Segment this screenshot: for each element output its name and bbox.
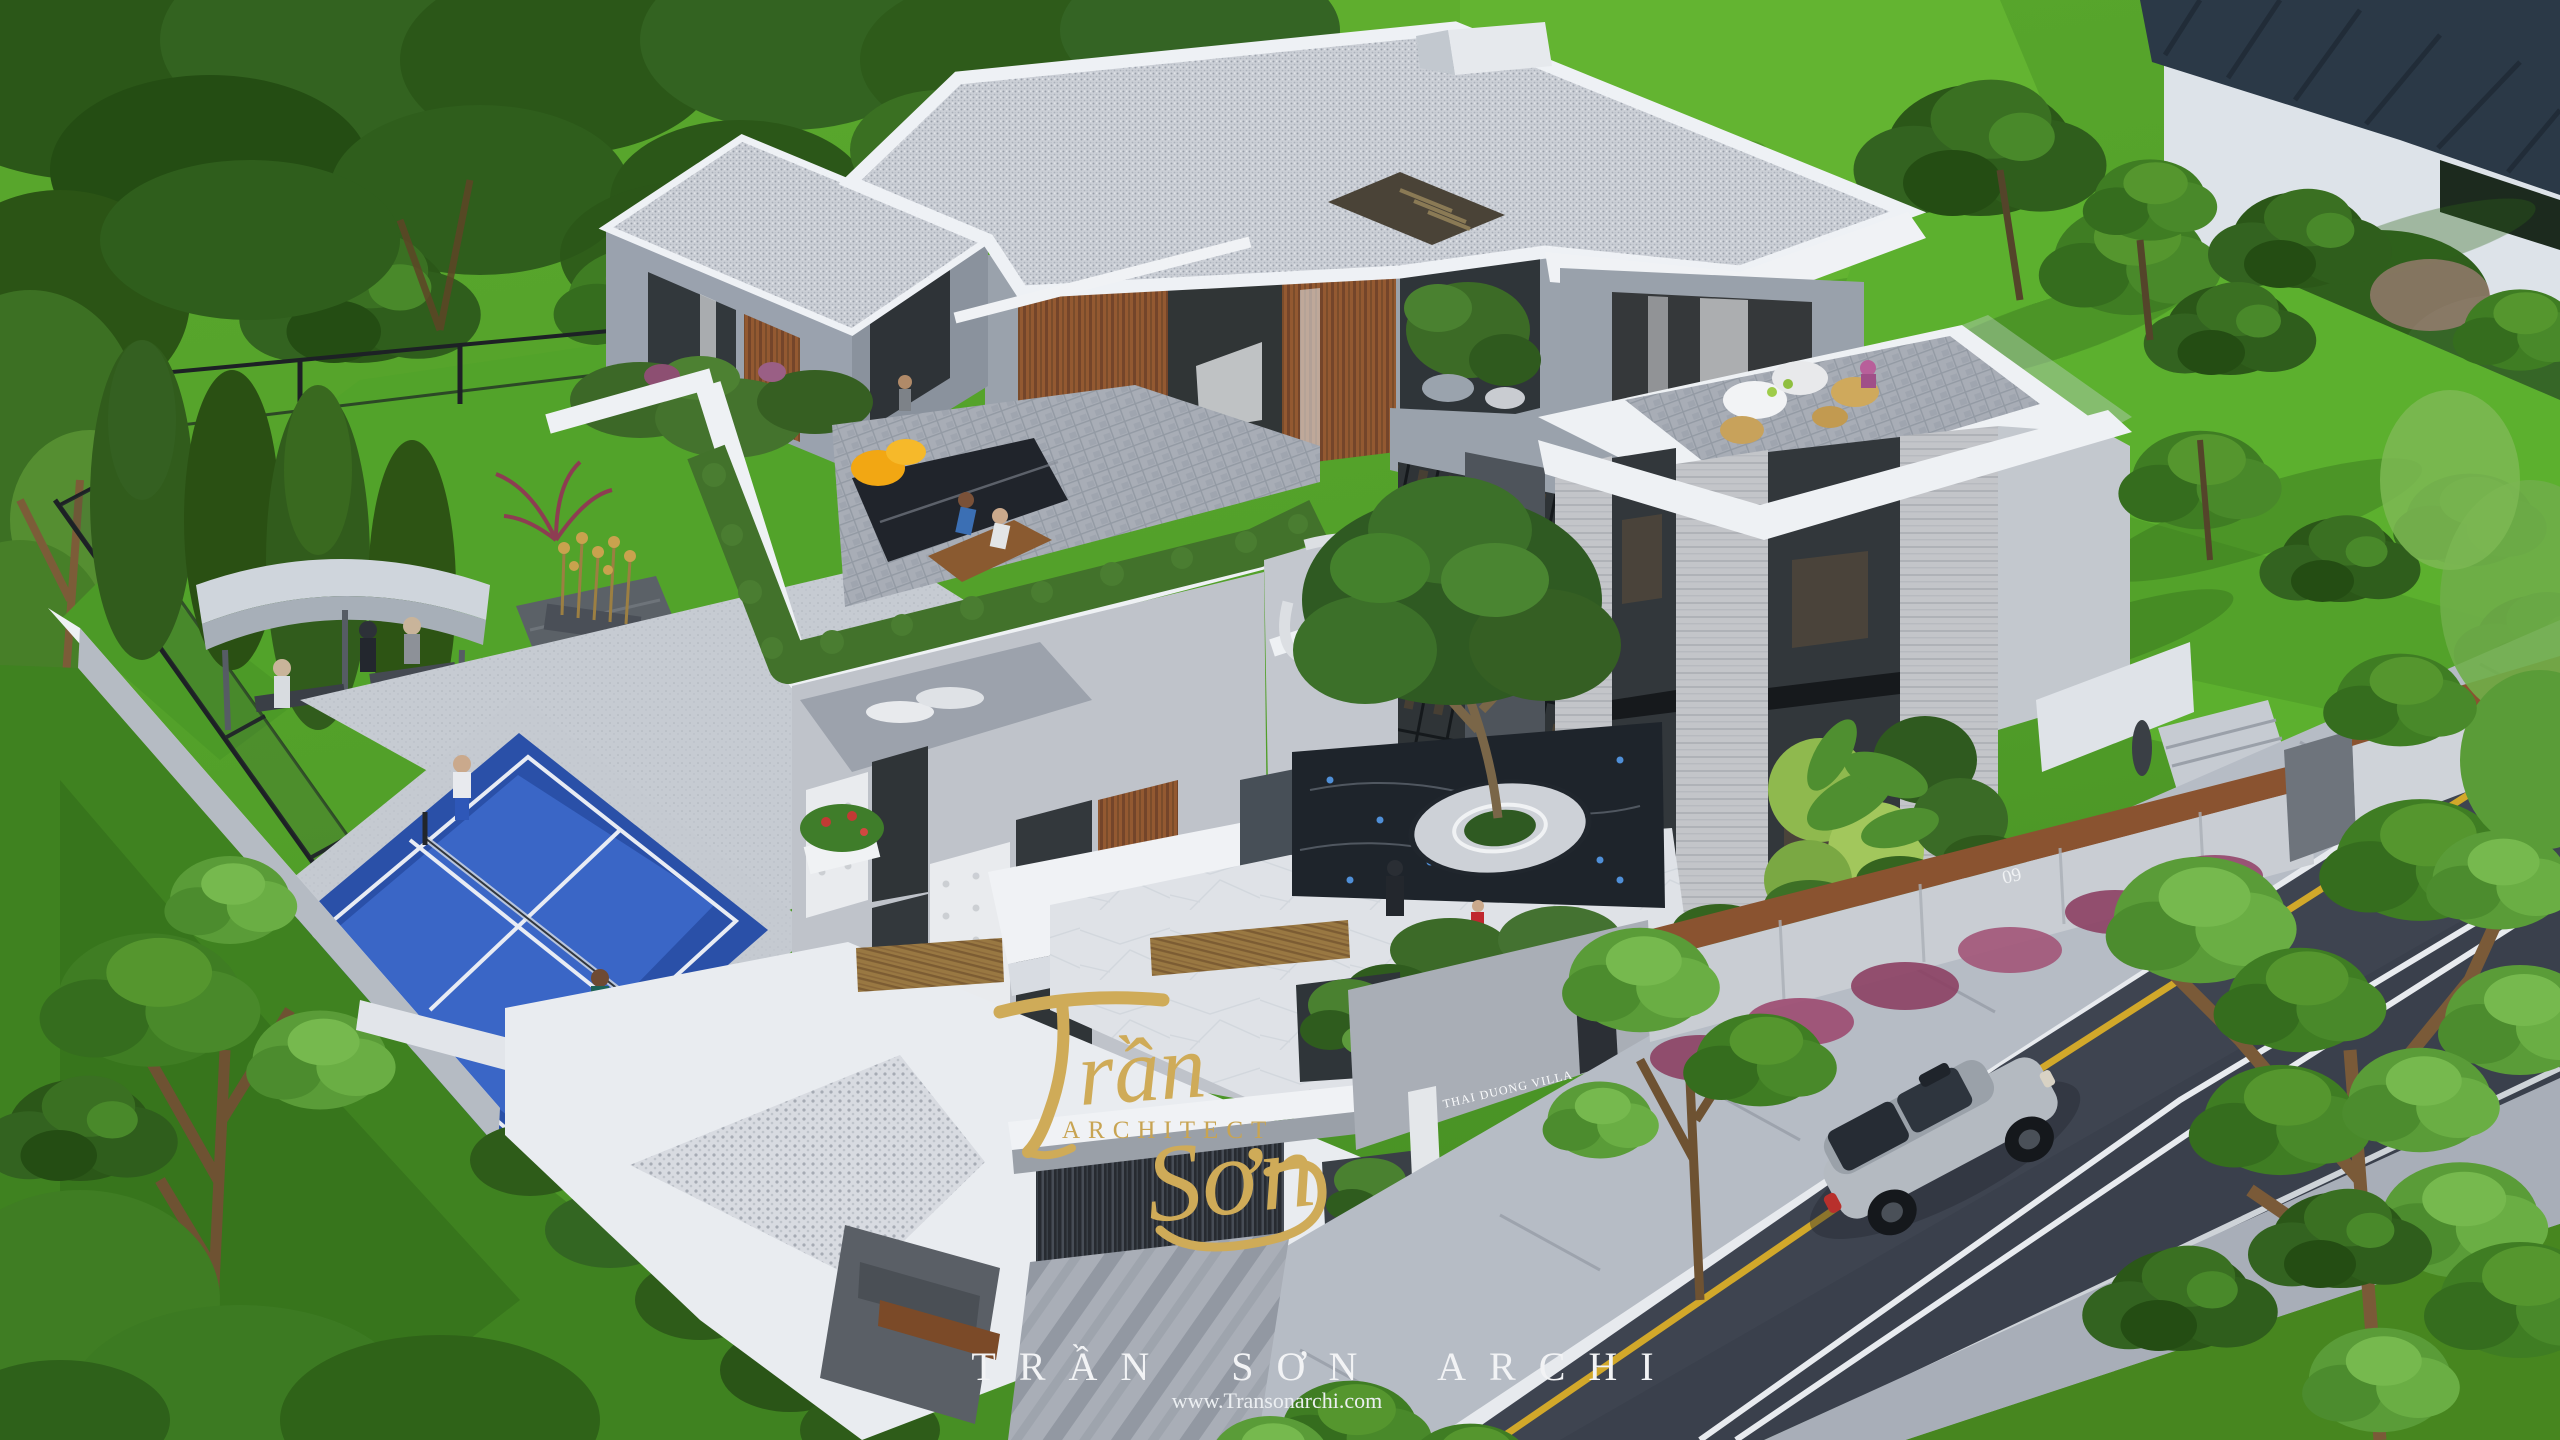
svg-text:www.Transonarchi.com: www.Transonarchi.com — [1172, 1388, 1382, 1413]
svg-text:TRẦN SƠN ARCHI: TRẦN SƠN ARCHI — [971, 1344, 1676, 1389]
svg-text:rần: rần — [1074, 1014, 1209, 1125]
svg-text:Sơn: Sơn — [1140, 1107, 1321, 1246]
